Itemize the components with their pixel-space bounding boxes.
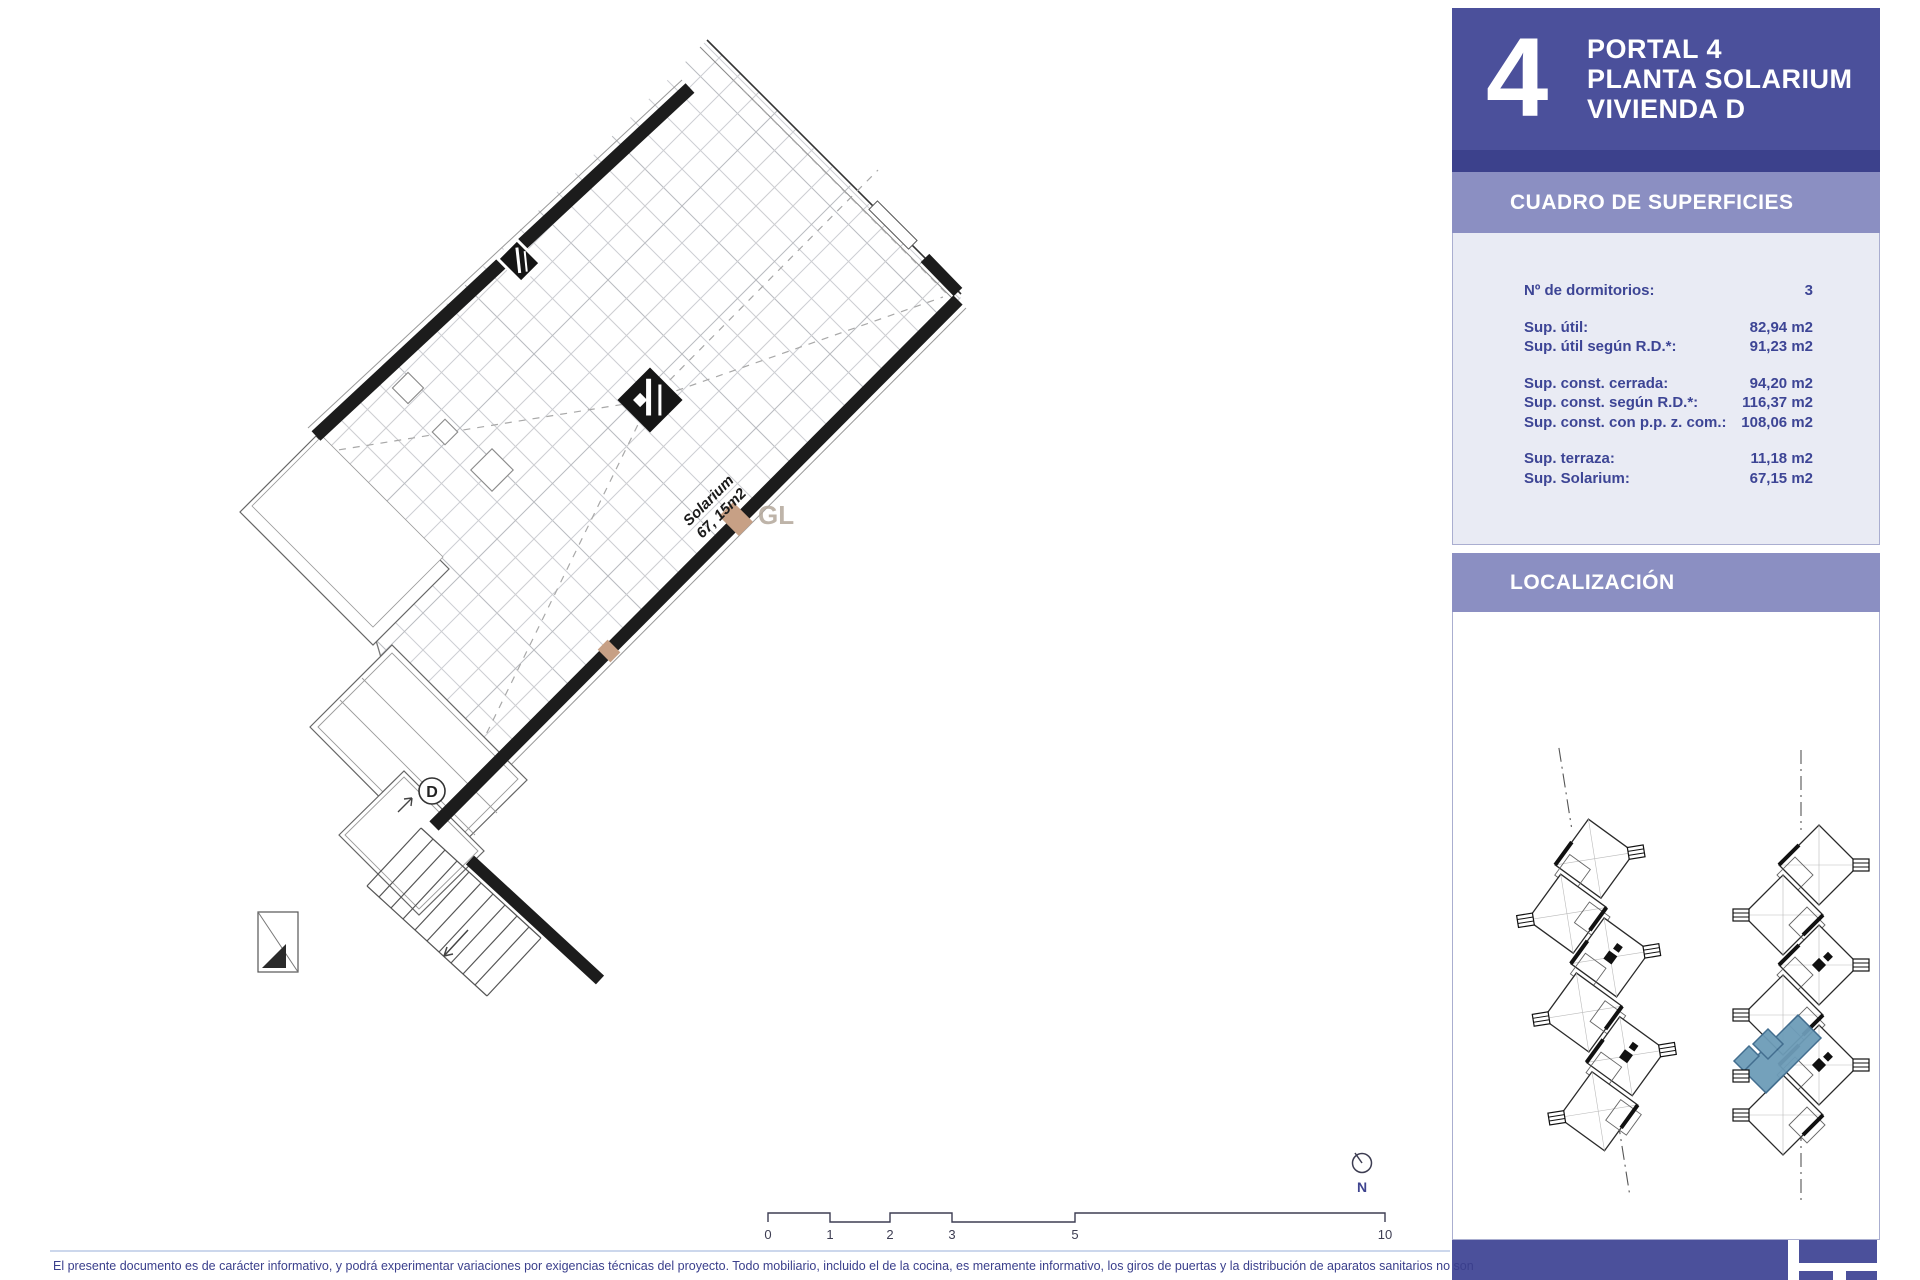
unit-stair-icon [1733,1070,1749,1082]
portal-number: 4 [1486,22,1548,134]
footer-bar [1452,1240,1788,1280]
row-value: 116,37 m2 [1742,393,1813,413]
table-row: Sup. útil:82,94 m2 [1524,318,1813,338]
terrace-wing [240,436,527,915]
scale-label-0: 0 [764,1227,771,1242]
scale-label-1: 1 [826,1227,833,1242]
scale-bar: 0 1 2 3 5 10 [764,1213,1392,1242]
table-row: Sup. útil según R.D.*:91,23 m2 [1524,337,1813,357]
disclaimer-text: El presente documento es de carácter inf… [53,1259,1453,1273]
scale-label-3: 3 [948,1227,955,1242]
row-label: Sup. útil: [1524,318,1588,338]
row-label: Sup. útil según R.D.*: [1524,337,1677,357]
row-value: 3 [1805,281,1813,301]
row-value: 94,20 m2 [1750,374,1813,394]
table-row: Sup. const. según R.D.*:116,37 m2 [1524,393,1813,413]
table-row: Sup. const. con p.p. z. com.:108,06 m2 [1524,413,1813,433]
table-row: Sup. Solarium:67,15 m2 [1524,469,1813,489]
header-divider [1452,150,1880,172]
info-sidebar: 4 PORTAL 4 PLANTA SOLARIUM VIVIENDA D CU… [1452,0,1880,1280]
north-compass-icon: N [1353,1153,1372,1195]
row-label: Sup. const. cerrada: [1524,374,1668,394]
north-label: N [1357,1179,1367,1195]
dwelling-title: VIVIENDA D [1587,94,1852,124]
surfaces-table: Nº de dormitorios:3 Sup. útil:82,94 m2 S… [1452,233,1880,545]
solarium-tile-grid [0,0,1300,1280]
row-label: Nº de dormitorios: [1524,281,1654,301]
row-value: 82,94 m2 [1750,318,1813,338]
row-label: Sup. const. según R.D.*: [1524,393,1698,413]
row-label: Sup. const. con p.p. z. com.: [1524,413,1727,433]
scale-label-2: 2 [886,1227,893,1242]
watermark: GL [758,500,794,530]
floorplan-drawing: GL Solarium 67, 15m2 D 0 1 2 3 5 10 [0,0,1452,1280]
scale-label-5: 5 [1071,1227,1078,1242]
ne-opening [869,201,917,249]
row-value: 67,15 m2 [1750,469,1813,489]
footer-divider [50,1250,1450,1252]
floor-title: PLANTA SOLARIUM [1587,64,1852,94]
sheet-header: 4 PORTAL 4 PLANTA SOLARIUM VIVIENDA D [1452,8,1880,150]
core-box [258,912,298,972]
row-label: Sup. Solarium: [1524,469,1630,489]
surfaces-section-title: CUADRO DE SUPERFICIES [1452,172,1880,233]
table-row: Sup. const. cerrada:94,20 m2 [1524,374,1813,394]
location-section-title: LOCALIZACIÓN [1452,553,1880,612]
row-value: 11,18 m2 [1750,449,1813,469]
site-buildings [1492,737,1869,1203]
row-label: Sup. terraza: [1524,449,1615,469]
location-map [1452,612,1880,1240]
roof-boxes [392,372,513,491]
scale-label-10: 10 [1378,1227,1392,1242]
row-value: 91,23 m2 [1750,337,1813,357]
table-row: Nº de dormitorios:3 [1524,281,1813,301]
row-value: 108,06 m2 [1741,413,1813,433]
brand-logo [1799,1240,1880,1280]
table-row: Sup. terraza:11,18 m2 [1524,449,1813,469]
portal-title: PORTAL 4 [1587,34,1852,64]
plan-sheet: GL Solarium 67, 15m2 D 0 1 2 3 5 10 [0,0,1920,1280]
svg-text:D: D [426,784,438,801]
